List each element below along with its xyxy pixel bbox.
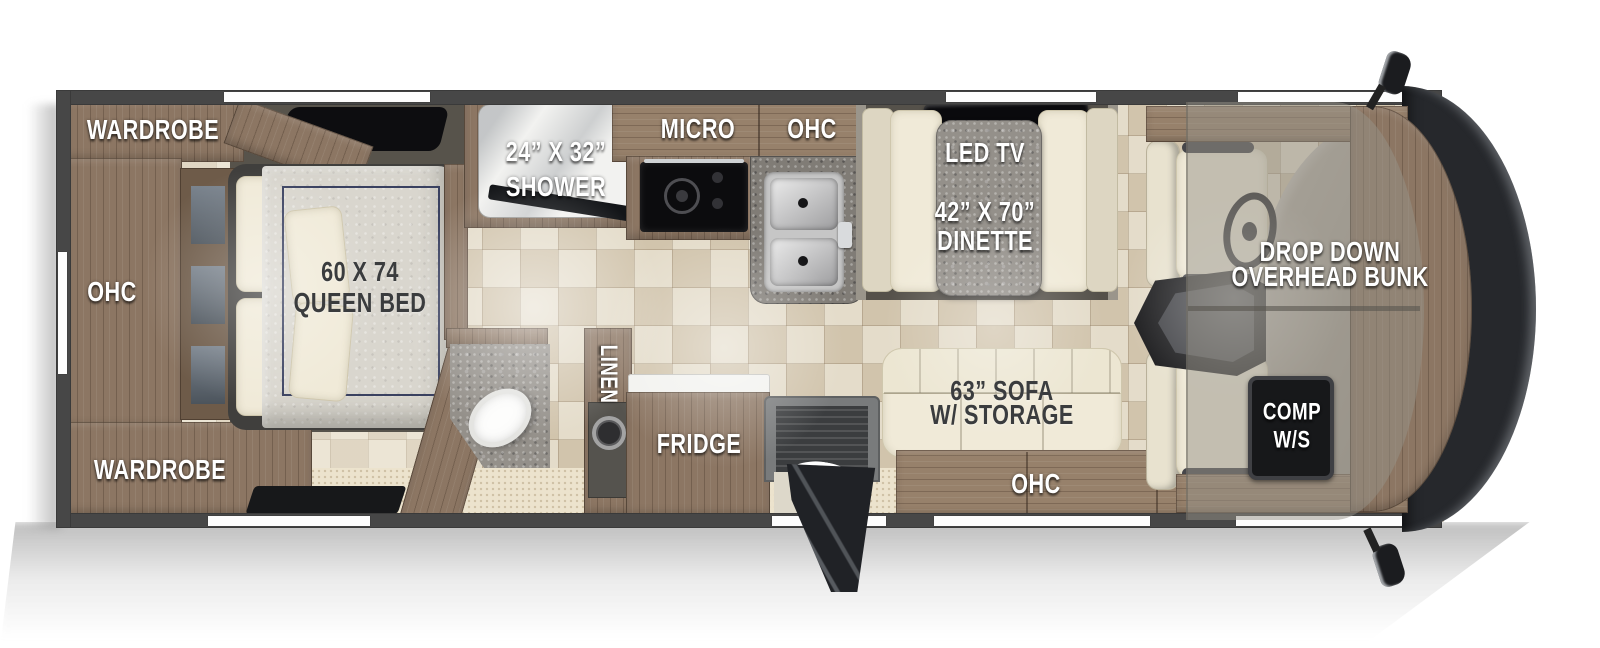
wardrobe-bottom-label: WARDROBE: [94, 456, 226, 484]
bunk-seam: [1188, 306, 1420, 311]
shower-dimension-label: 24” X 32”: [506, 138, 606, 166]
dinette-bench-right: [1038, 110, 1090, 292]
bed-dimension-label: 60 X 74: [321, 258, 399, 286]
wardrobe-top-label: WARDROBE: [87, 116, 219, 144]
burner-icon: [676, 190, 688, 202]
rv-floorplan-diagram: WARDROBE OHC WARDROBE 60 X 74 QUEEN BED …: [0, 0, 1600, 648]
burner-icon: [712, 198, 723, 209]
rear-ohc-label: OHC: [87, 278, 136, 306]
comp-ws-label-line1: COMP: [1263, 400, 1321, 424]
ground-shadow: [0, 522, 1545, 648]
bunk-label-line2: OVERHEAD BUNK: [1231, 263, 1428, 291]
floor-mat: [245, 486, 406, 514]
window-segment: [224, 92, 430, 102]
burner-icon: [712, 172, 723, 183]
micro-label: MICRO: [661, 115, 735, 143]
dinette-bench-back: [1086, 108, 1118, 292]
comp-ws-label-line2: W/S: [1274, 428, 1311, 452]
shower-name-label: SHOWER: [506, 173, 606, 201]
sink-drain-icon: [798, 256, 808, 266]
bed-name-label: QUEEN BED: [294, 289, 427, 317]
linen-label: LINEN: [596, 345, 620, 404]
dinette-dimension-label: 42” X 70”: [935, 198, 1035, 226]
bathroom-sink: [592, 416, 626, 450]
dinette-name-label: DINETTE: [937, 227, 1033, 255]
kitchen-ohc-label: OHC: [787, 115, 836, 143]
faucet-icon: [838, 222, 852, 248]
cooktop-trim: [644, 159, 744, 163]
passenger-seat-backrest: [1146, 350, 1180, 490]
fridge-label: FRIDGE: [657, 430, 741, 458]
window-segment: [946, 92, 1096, 102]
sofa-ohc-label: OHC: [1011, 470, 1060, 498]
led-tv-label: LED TV: [945, 139, 1025, 167]
window-segment: [58, 252, 67, 374]
window-segment: [208, 516, 370, 526]
sink-drain-icon: [798, 198, 808, 208]
cabinet-seam: [758, 100, 760, 160]
window-segment: [934, 516, 1150, 526]
sofa-storage-label: W/ STORAGE: [930, 401, 1074, 429]
driver-seat-backrest: [1146, 140, 1180, 288]
